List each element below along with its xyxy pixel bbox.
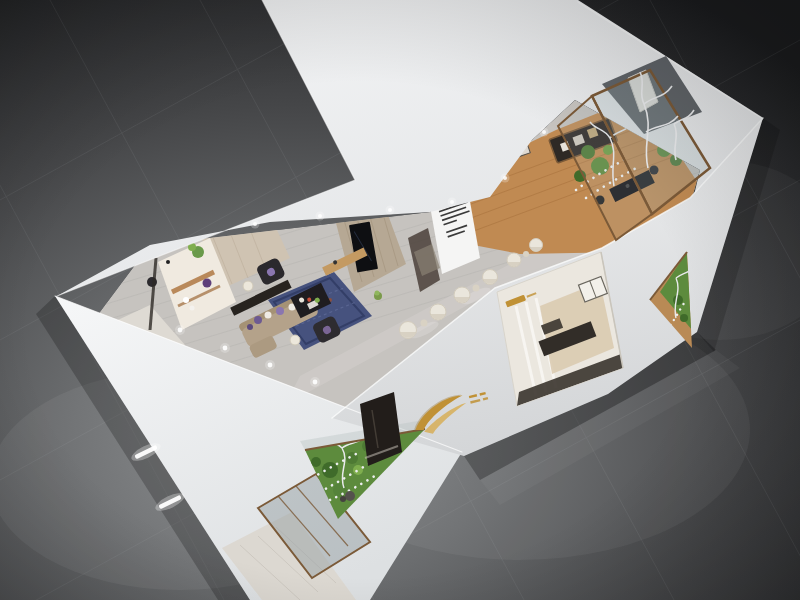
exhibition-booth-render (0, 0, 800, 600)
vignette (0, 0, 800, 600)
